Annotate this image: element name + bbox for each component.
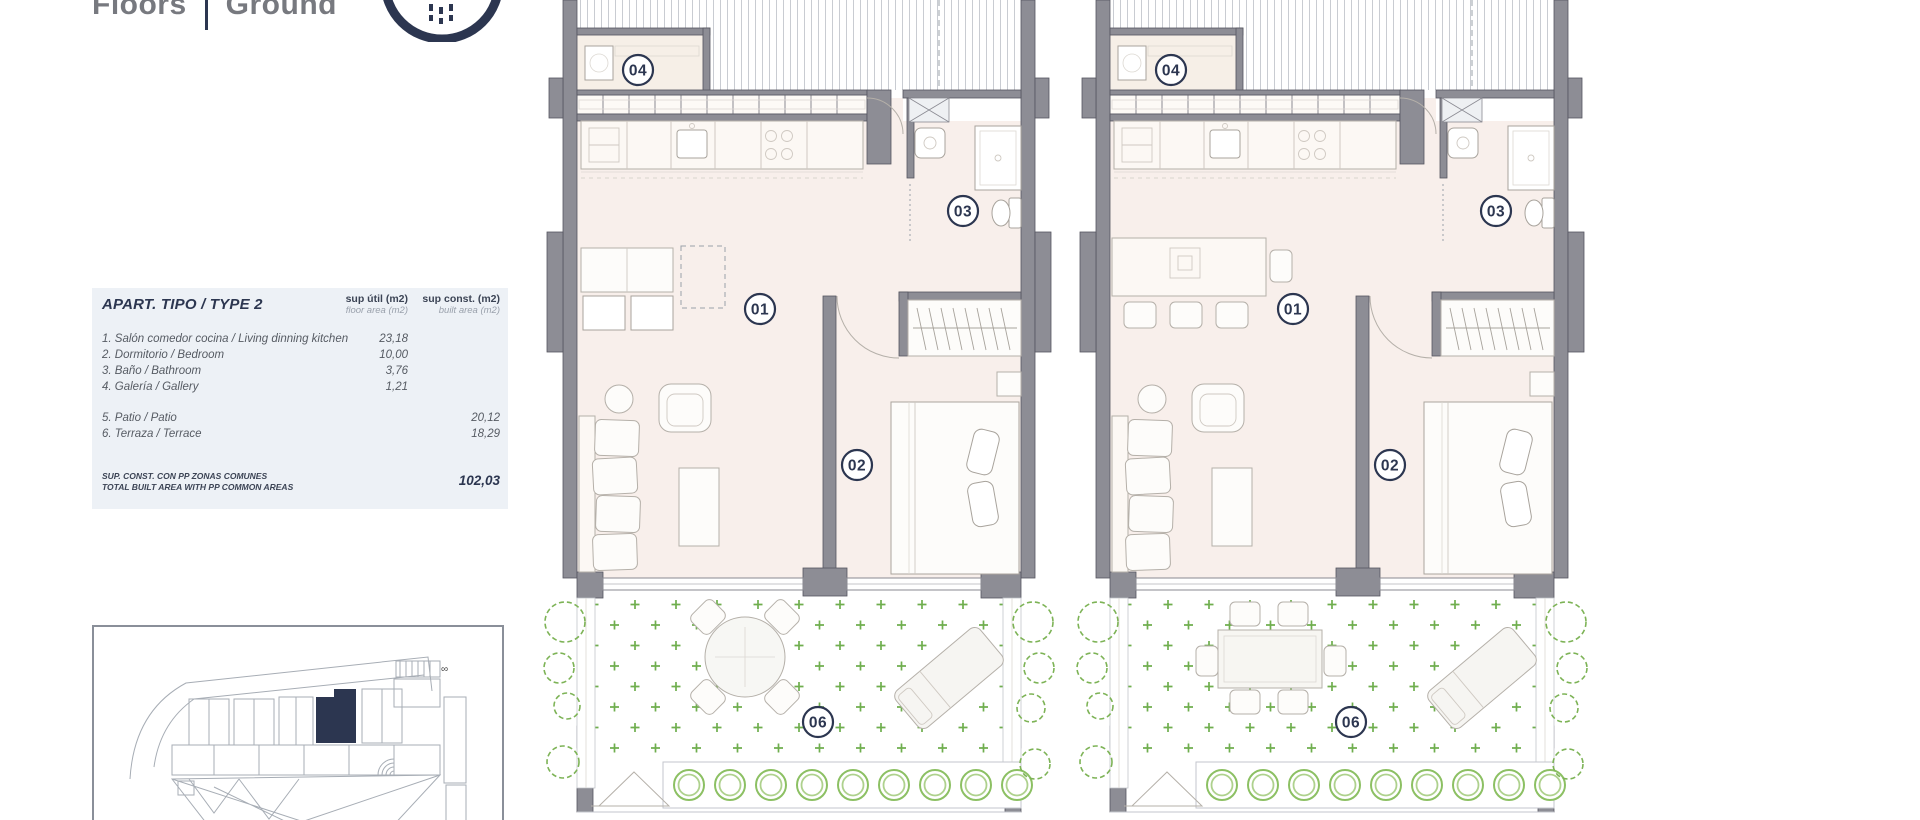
room-label-living: 01 (745, 294, 775, 324)
svg-text:03: 03 (954, 204, 972, 221)
page: Floors Ground APART. TIPO / TYPE 2 sup ú… (0, 0, 1920, 820)
room-label-gallery: 04 (623, 55, 653, 85)
room-label-gallery: 04 (1156, 55, 1186, 85)
floor-selector-header: Floors Ground (92, 0, 337, 30)
bed (1424, 372, 1554, 574)
room-label-terrace: 06 (803, 707, 833, 737)
col-built-area: sup const. (m2) built area (m2) (92, 293, 500, 317)
wardrobe (1441, 300, 1554, 356)
header-divider (205, 0, 208, 30)
svg-text:03: 03 (1487, 204, 1505, 221)
terrace-windows (1136, 578, 1514, 590)
terrace (577, 598, 1032, 812)
room-label-bathroom: 03 (1481, 196, 1511, 226)
room-label-bathroom: 03 (948, 196, 978, 226)
room-label-bedroom: 02 (842, 450, 872, 480)
legend-rows: 1. Salón comedor cocina / Living dinning… (92, 324, 508, 443)
floor-plan-left: 04 03 01 02 06 (541, 0, 1057, 820)
legend-header: APART. TIPO / TYPE 2 sup útil (m2) floor… (92, 288, 508, 324)
svg-text:04: 04 (629, 63, 647, 80)
svg-text:01: 01 (751, 302, 769, 319)
site-mark: ∞ (441, 664, 448, 675)
room-label-terrace: 06 (1336, 707, 1366, 737)
svg-text:01: 01 (1284, 302, 1302, 319)
legend-row: 3. Baño / Bathroom3,76 (92, 364, 508, 380)
site-annex (394, 661, 466, 820)
floors-label: Floors (92, 0, 187, 22)
site-lower-band (172, 745, 440, 795)
svg-text:02: 02 (848, 458, 866, 475)
wardrobe (908, 300, 1021, 356)
svg-text:06: 06 (1342, 715, 1360, 732)
kitchen-counter (581, 121, 863, 178)
legend-row: 4. Galería / Gallery1,21 (92, 380, 508, 396)
highlighted-unit (316, 689, 356, 743)
site-plan: ∞ N (94, 627, 502, 820)
legend-row: 1. Salón comedor cocina / Living dinning… (92, 332, 508, 348)
kitchen-window-band (577, 95, 867, 114)
kitchen-window-band (1110, 95, 1400, 114)
room-label-living: 01 (1278, 294, 1308, 324)
legend-total: SUP. CONST. CON PP ZONAS COMUNESTOTAL BU… (92, 465, 508, 509)
site-units-row (189, 689, 402, 745)
site-road-diagonals (172, 759, 440, 820)
legend-row: 2. Dormitorio / Bedroom10,00 (92, 348, 508, 364)
total-built-area-value: 102,03 (92, 473, 500, 488)
building-rain-logo-icon (372, 0, 512, 42)
key-plan-box: ∞ N (92, 625, 504, 820)
room-label-bedroom: 02 (1375, 450, 1405, 480)
legend-row: 5. Patio / Patio20,12 (92, 411, 508, 427)
kitchen-counter (1114, 121, 1396, 178)
svg-text:06: 06 (809, 715, 827, 732)
area-legend-panel: APART. TIPO / TYPE 2 sup útil (m2) floor… (92, 288, 508, 509)
floor-plan-right: 04 03 01 02 06 (1074, 0, 1590, 820)
svg-text:04: 04 (1162, 63, 1180, 80)
terrace-windows (603, 578, 981, 590)
legend-row: 6. Terraza / Terrace18,29 (92, 427, 508, 443)
terrace (1110, 598, 1565, 812)
bed (891, 372, 1021, 574)
floor-name: Ground (226, 0, 337, 22)
svg-text:02: 02 (1381, 458, 1399, 475)
